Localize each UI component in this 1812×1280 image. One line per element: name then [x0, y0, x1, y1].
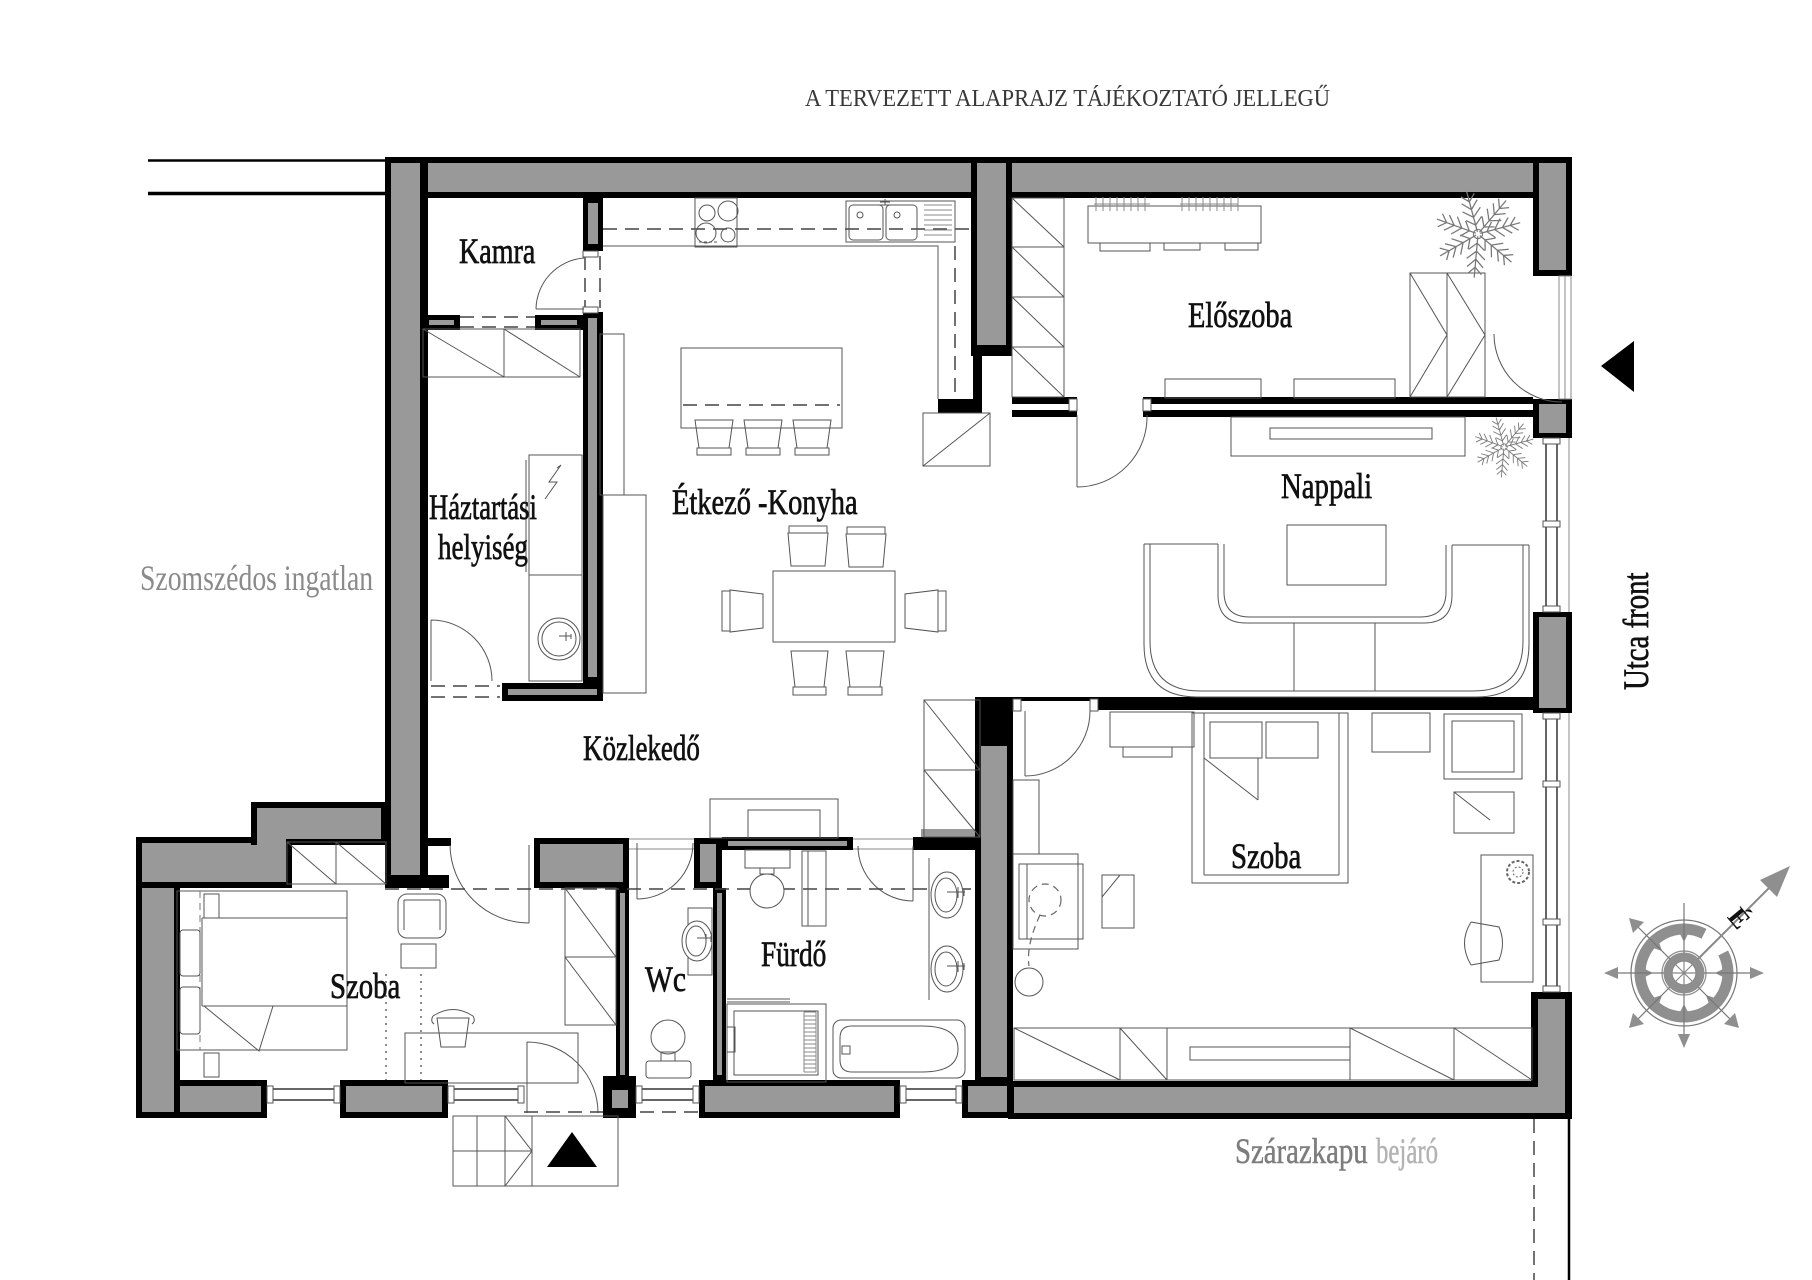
- svg-text:Kamra: Kamra: [459, 231, 535, 271]
- svg-text:Szoba: Szoba: [1231, 837, 1302, 877]
- svg-text:bejáró: bejáró: [1376, 1130, 1438, 1171]
- svg-text:A TERVEZETT ALAPRAJZ TÁJÉKOZTA: A TERVEZETT ALAPRAJZ TÁJÉKOZTATÓ JELLEGŰ: [805, 84, 1330, 112]
- svg-text:Utca front: Utca front: [1617, 573, 1657, 690]
- svg-text:Fürdő: Fürdő: [761, 934, 826, 973]
- svg-text:Étkező -Konyha: Étkező -Konyha: [672, 483, 858, 523]
- svg-text:Szoba: Szoba: [330, 967, 401, 1007]
- svg-text:Közlekedő: Közlekedő: [583, 728, 700, 768]
- svg-text:helyiség: helyiség: [438, 527, 528, 567]
- svg-text:Háztartási: Háztartási: [429, 487, 537, 527]
- svg-text:Szomszédos ingatlan: Szomszédos ingatlan: [140, 558, 373, 598]
- svg-text:Előszoba: Előszoba: [1188, 296, 1292, 336]
- svg-text:Nappali: Nappali: [1281, 467, 1372, 507]
- svg-text:Wc: Wc: [645, 960, 686, 999]
- svg-text:Szárazkapu: Szárazkapu: [1235, 1132, 1368, 1172]
